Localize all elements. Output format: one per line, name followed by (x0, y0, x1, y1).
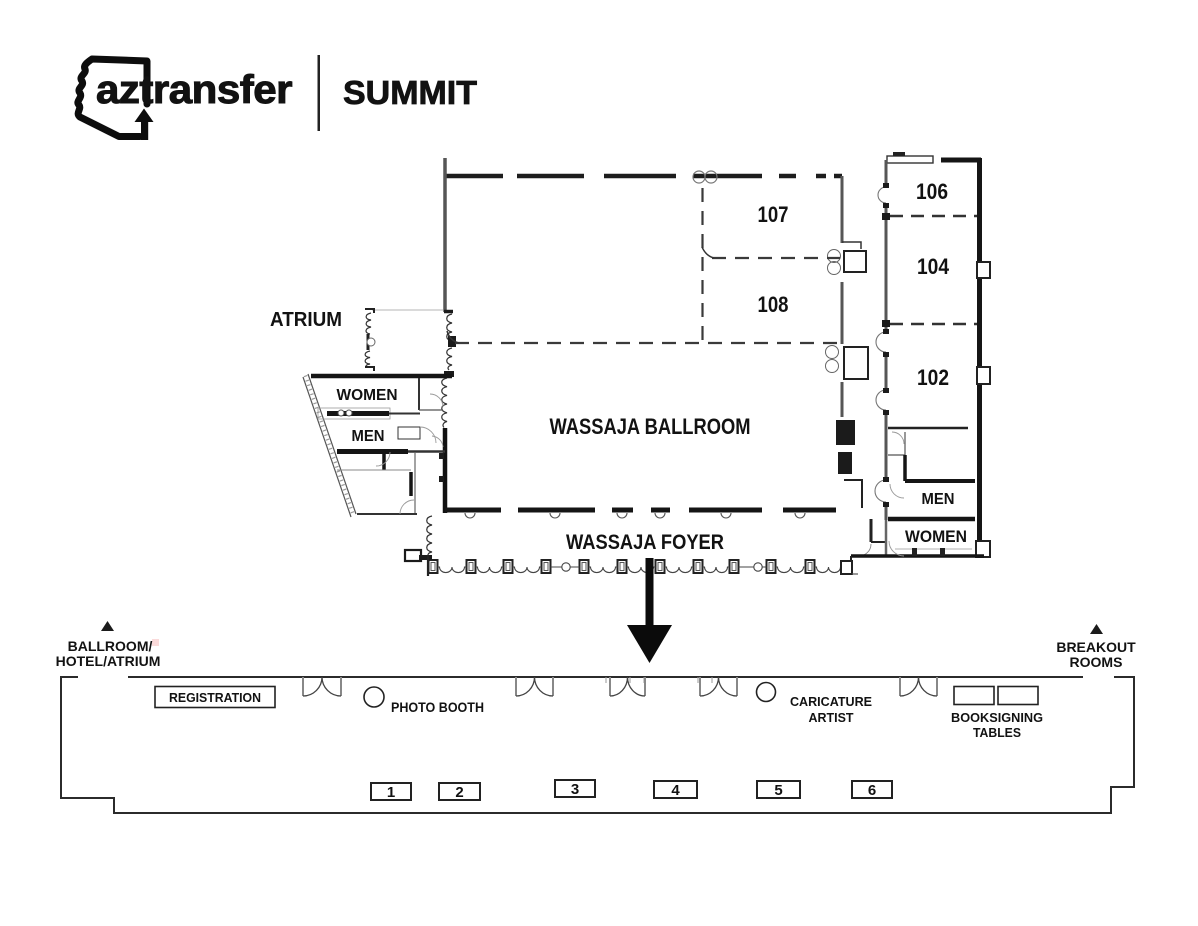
svg-text:MEN: MEN (352, 428, 385, 445)
svg-text:104: 104 (917, 254, 949, 279)
svg-text:REGISTRATION: REGISTRATION (169, 690, 261, 705)
svg-text:CARICATURE: CARICATURE (790, 694, 872, 709)
svg-text:BREAKOUT: BREAKOUT (1056, 639, 1136, 655)
svg-text:ATRIUM: ATRIUM (270, 309, 342, 331)
svg-text:ROOMS: ROOMS (1070, 654, 1123, 670)
svg-text:MEN: MEN (922, 491, 955, 508)
svg-text:3: 3 (571, 781, 579, 798)
svg-text:aztransfer: aztransfer (96, 68, 292, 112)
svg-text:PHOTO BOOTH: PHOTO BOOTH (391, 700, 484, 715)
svg-text:5: 5 (774, 782, 782, 799)
svg-text:4: 4 (671, 782, 680, 799)
svg-text:107: 107 (758, 202, 789, 227)
svg-text:ARTIST: ARTIST (809, 710, 854, 725)
svg-text:WOMEN: WOMEN (905, 528, 967, 546)
svg-text:102: 102 (917, 365, 949, 390)
svg-text:WASSAJA FOYER: WASSAJA FOYER (566, 530, 724, 554)
svg-text:WOMEN: WOMEN (337, 387, 398, 404)
svg-text:SUMMIT: SUMMIT (343, 74, 477, 111)
svg-text:BALLROOM/: BALLROOM/ (68, 638, 153, 654)
svg-text:BOOKSIGNING: BOOKSIGNING (951, 710, 1043, 725)
svg-text:TABLES: TABLES (973, 725, 1021, 740)
svg-text:1: 1 (387, 784, 395, 801)
svg-text:WASSAJA BALLROOM: WASSAJA BALLROOM (550, 414, 751, 439)
svg-text:108: 108 (758, 292, 789, 317)
svg-text:2: 2 (455, 784, 463, 801)
svg-text:HOTEL/ATRIUM: HOTEL/ATRIUM (56, 653, 161, 669)
svg-text:6: 6 (868, 782, 876, 799)
svg-text:106: 106 (916, 179, 948, 204)
